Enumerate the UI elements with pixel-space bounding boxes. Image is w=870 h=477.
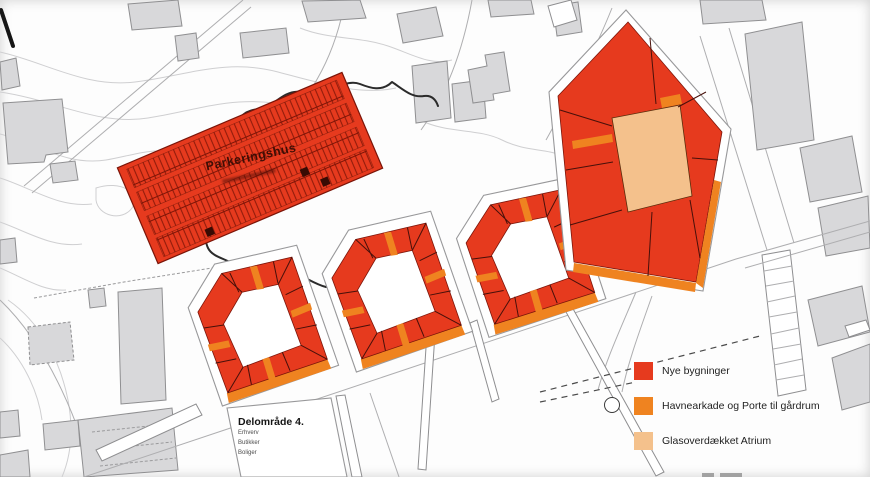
legend-label-havnearkade: Havnearkade og Porte til gårdrum [662, 400, 820, 412]
legend-swatch-nye-bygninger [634, 362, 653, 380]
area-use-item: Erhverv [238, 429, 304, 438]
legend-item-nye-bygninger: Nye bygninger [634, 362, 730, 380]
cropped-caption-fragment [702, 473, 714, 477]
cropped-caption-fragment [720, 473, 742, 477]
site-plan: Parkeringshus Delområde 4. Erhverv Butik… [0, 0, 870, 477]
area-label-box: Delområde 4. Erhverv Butikker Boliger [238, 416, 304, 458]
legend-item-havnearkade: Havnearkade og Porte til gårdrum [634, 397, 820, 415]
area-use-item: Butikker [238, 439, 304, 448]
legend-swatch-atrium [634, 432, 653, 450]
area-use-item: Boliger [238, 449, 304, 458]
area-title: Delområde 4. [238, 416, 304, 428]
area-use-list: Erhverv Butikker Boliger [238, 429, 304, 458]
legend-swatch-havnearkade [634, 397, 653, 415]
legend-label-atrium: Glasoverdækket Atrium [662, 435, 771, 447]
parking-sub-label [222, 168, 276, 183]
legend-label-nye-bygninger: Nye bygninger [662, 365, 730, 377]
legend-item-atrium: Glasoverdækket Atrium [634, 432, 771, 450]
label-overlay: Parkeringshus Delområde 4. Erhverv Butik… [0, 0, 870, 477]
porte-circle-symbol [604, 397, 620, 413]
